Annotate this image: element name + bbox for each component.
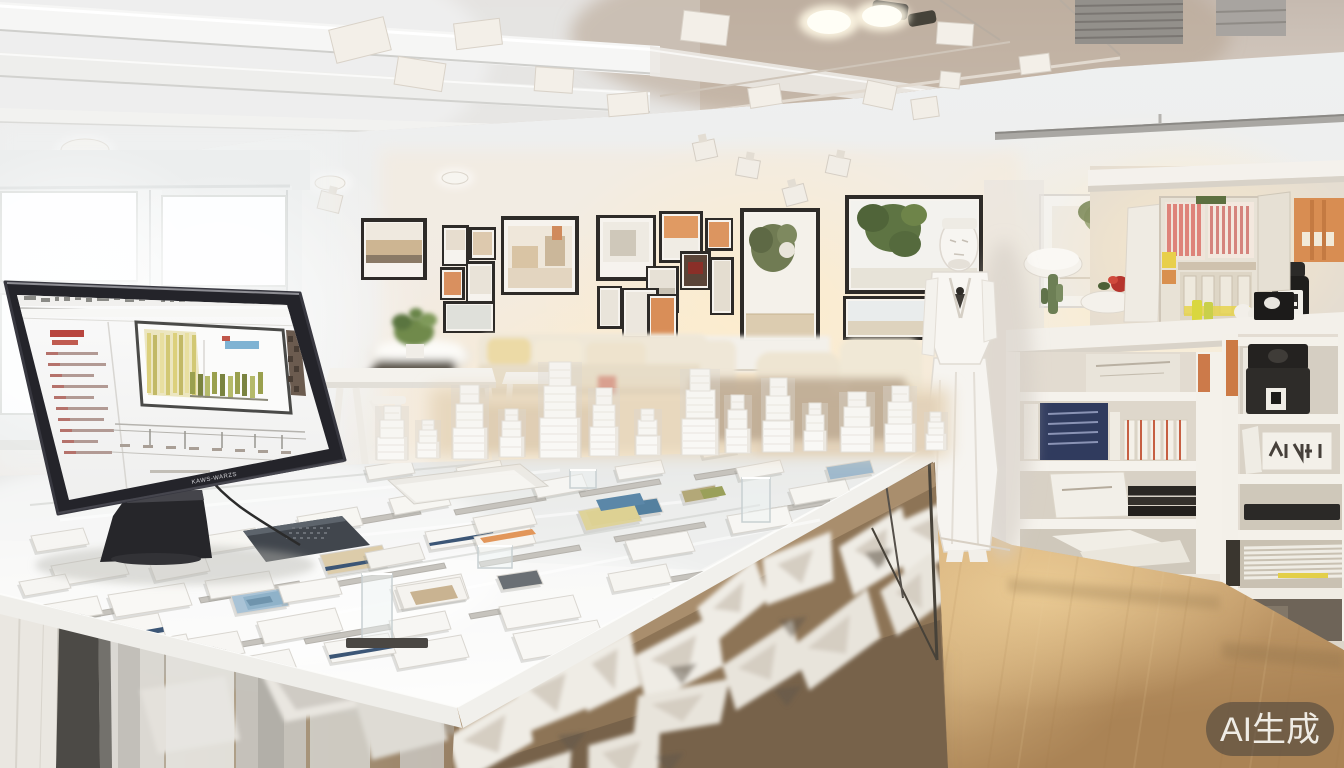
svg-text:AI生成: AI生成 [1220, 711, 1320, 749]
